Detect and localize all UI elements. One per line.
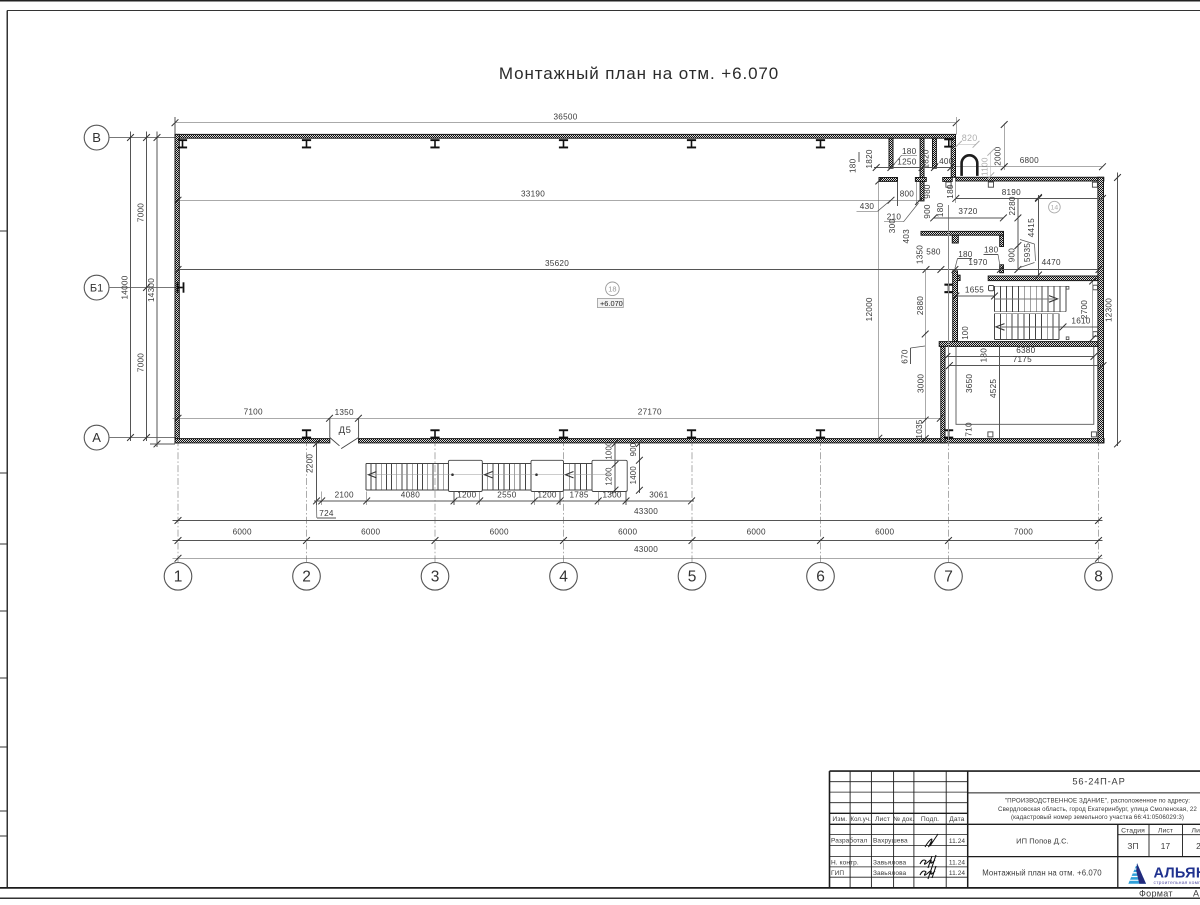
svg-text:27170: 27170 [638, 408, 662, 417]
svg-text:1400: 1400 [629, 466, 638, 485]
svg-text:43000: 43000 [634, 545, 658, 554]
svg-text:180: 180 [980, 348, 989, 363]
svg-text:Формат: Формат [1139, 889, 1173, 899]
svg-text:Изм.: Изм. [832, 816, 847, 823]
svg-text:1200: 1200 [604, 467, 613, 486]
svg-text:12300: 12300 [1105, 298, 1114, 322]
svg-text:1250: 1250 [897, 157, 916, 166]
svg-text:А: А [92, 430, 101, 445]
svg-text:строительная компания: строительная компания [1154, 881, 1200, 886]
svg-text:6380: 6380 [1016, 346, 1035, 355]
svg-text:Подп.: Подп. [921, 816, 939, 823]
svg-text:430: 430 [860, 202, 875, 211]
svg-text:3720: 3720 [958, 207, 977, 216]
svg-text:Дата: Дата [949, 816, 964, 823]
svg-text:5935: 5935 [1023, 243, 1032, 262]
svg-text:4: 4 [559, 569, 568, 586]
svg-text:1035: 1035 [915, 419, 924, 438]
svg-text:Монтажный план на отм. +6.070: Монтажный план на отм. +6.070 [982, 869, 1102, 878]
svg-text:980: 980 [923, 184, 932, 199]
svg-text:2200: 2200 [306, 454, 315, 473]
svg-text:1200: 1200 [457, 490, 476, 499]
svg-text:18: 18 [608, 285, 616, 294]
svg-text:11.24: 11.24 [949, 860, 966, 867]
svg-text:403: 403 [902, 229, 911, 244]
svg-text:6: 6 [816, 569, 825, 586]
svg-text:35620: 35620 [545, 259, 569, 268]
svg-text:+6.070: +6.070 [600, 299, 623, 308]
svg-text:1: 1 [174, 569, 183, 586]
svg-text:7000: 7000 [136, 203, 145, 222]
svg-text:Лист: Лист [1158, 827, 1173, 834]
svg-text:180: 180 [958, 250, 973, 259]
svg-text:1970: 1970 [968, 258, 987, 267]
svg-text:5: 5 [688, 569, 697, 586]
svg-text:"ПРОИЗВОДСТВЕННОЕ ЗДАНИЕ", рас: "ПРОИЗВОДСТВЕННОЕ ЗДАНИЕ", расположенное… [1005, 798, 1190, 805]
svg-text:1820: 1820 [865, 149, 874, 168]
svg-text:2880: 2880 [916, 296, 925, 315]
svg-text:6000: 6000 [618, 527, 637, 536]
svg-text:7000: 7000 [1014, 527, 1033, 536]
svg-text:В: В [92, 130, 101, 145]
svg-text:900: 900 [1008, 248, 1017, 263]
svg-text:3000: 3000 [916, 374, 925, 393]
svg-text:(кадастровый номер земельного: (кадастровый номер земельного участка 66… [1011, 814, 1184, 821]
svg-text:900: 900 [629, 442, 638, 456]
svg-text:6800: 6800 [1020, 156, 1039, 165]
svg-text:Д5: Д5 [339, 425, 352, 436]
svg-text:1655: 1655 [965, 285, 984, 294]
svg-text:Свердловская область, город Ек: Свердловская область, город Екатеринбург… [998, 806, 1197, 813]
svg-text:2280: 2280 [1008, 196, 1017, 215]
svg-text:2700: 2700 [1080, 300, 1089, 319]
svg-text:ГИП: ГИП [831, 870, 844, 877]
svg-text:7100: 7100 [244, 408, 263, 417]
svg-text:3061: 3061 [649, 490, 668, 499]
svg-text:2100: 2100 [335, 490, 354, 499]
svg-text:6000: 6000 [875, 527, 894, 536]
svg-text:Монтажный план на отм. +6.070: Монтажный план на отм. +6.070 [499, 64, 779, 83]
svg-text:1400: 1400 [934, 157, 953, 166]
svg-text:43300: 43300 [634, 507, 658, 516]
svg-text:56-24П-АР: 56-24П-АР [1072, 777, 1125, 787]
svg-text:724: 724 [319, 509, 334, 518]
svg-text:300: 300 [888, 219, 897, 234]
svg-text:6000: 6000 [361, 527, 380, 536]
svg-text:Н. контр.: Н. контр. [831, 859, 859, 866]
svg-text:2: 2 [1196, 841, 1200, 851]
svg-text:11.24: 11.24 [949, 838, 966, 845]
svg-text:6000: 6000 [747, 527, 766, 536]
svg-text:4470: 4470 [1042, 258, 1061, 267]
svg-text:6000: 6000 [233, 527, 252, 536]
svg-text:14300: 14300 [147, 278, 156, 302]
svg-text:3: 3 [431, 569, 440, 586]
svg-text:4415: 4415 [1027, 218, 1036, 237]
svg-text:Б1: Б1 [90, 282, 103, 294]
svg-text:3650: 3650 [965, 374, 974, 393]
svg-text:Лис: Лис [1192, 827, 1200, 834]
svg-text:Разработал: Разработал [831, 837, 867, 845]
svg-text:Завьялова: Завьялова [873, 870, 907, 877]
svg-text:800: 800 [900, 190, 915, 199]
svg-text:1350: 1350 [915, 245, 924, 264]
svg-text:1100: 1100 [980, 157, 990, 176]
svg-text:Стадия: Стадия [1121, 827, 1145, 834]
svg-text:8190: 8190 [1002, 188, 1021, 197]
svg-text:7: 7 [944, 569, 953, 586]
svg-text:2000: 2000 [994, 146, 1003, 165]
svg-text:710: 710 [964, 422, 973, 437]
svg-text:2550: 2550 [497, 490, 516, 499]
svg-text:180: 180 [946, 184, 955, 199]
svg-text:1820: 1820 [922, 149, 931, 168]
svg-text:1200: 1200 [537, 490, 556, 499]
svg-text:900: 900 [923, 204, 932, 219]
svg-text:7000: 7000 [136, 353, 145, 372]
svg-text:14000: 14000 [120, 275, 129, 299]
svg-text:33190: 33190 [521, 190, 545, 199]
svg-text:36500: 36500 [553, 113, 577, 122]
svg-text:11.24: 11.24 [949, 870, 966, 877]
svg-text:180: 180 [984, 246, 999, 255]
svg-text:180: 180 [848, 158, 857, 173]
svg-text:Вахрушева: Вахрушева [873, 838, 908, 845]
svg-text:6000: 6000 [490, 527, 509, 536]
svg-text:1785: 1785 [569, 490, 588, 499]
svg-text:Кол.уч.: Кол.уч. [851, 817, 872, 823]
svg-text:№ док.: № док. [893, 816, 914, 823]
svg-text:14: 14 [1051, 205, 1059, 212]
svg-text:4525: 4525 [989, 379, 998, 398]
svg-text:Завьялова: Завьялова [873, 859, 907, 866]
svg-text:670: 670 [900, 349, 909, 364]
svg-text:820: 820 [962, 133, 978, 143]
svg-text:1000: 1000 [604, 441, 613, 460]
svg-text:2: 2 [302, 569, 311, 586]
svg-text:17: 17 [1161, 841, 1171, 851]
svg-text:180: 180 [902, 147, 917, 156]
svg-text:АЛЬЯНС: АЛЬЯНС [1154, 865, 1200, 881]
svg-text:А1: А1 [1193, 888, 1200, 898]
svg-text:8: 8 [1094, 569, 1103, 586]
svg-text:1300: 1300 [602, 490, 621, 499]
svg-text:1350: 1350 [335, 408, 354, 417]
svg-text:12000: 12000 [865, 297, 874, 321]
svg-text:580: 580 [926, 247, 941, 256]
svg-text:100: 100 [961, 326, 970, 340]
svg-text:4080: 4080 [401, 490, 420, 499]
svg-text:ЗП: ЗП [1127, 841, 1138, 851]
svg-text:ИП Попов Д.С.: ИП Попов Д.С. [1016, 836, 1069, 845]
svg-text:Лист: Лист [875, 816, 890, 823]
svg-text:7175: 7175 [1013, 355, 1032, 364]
